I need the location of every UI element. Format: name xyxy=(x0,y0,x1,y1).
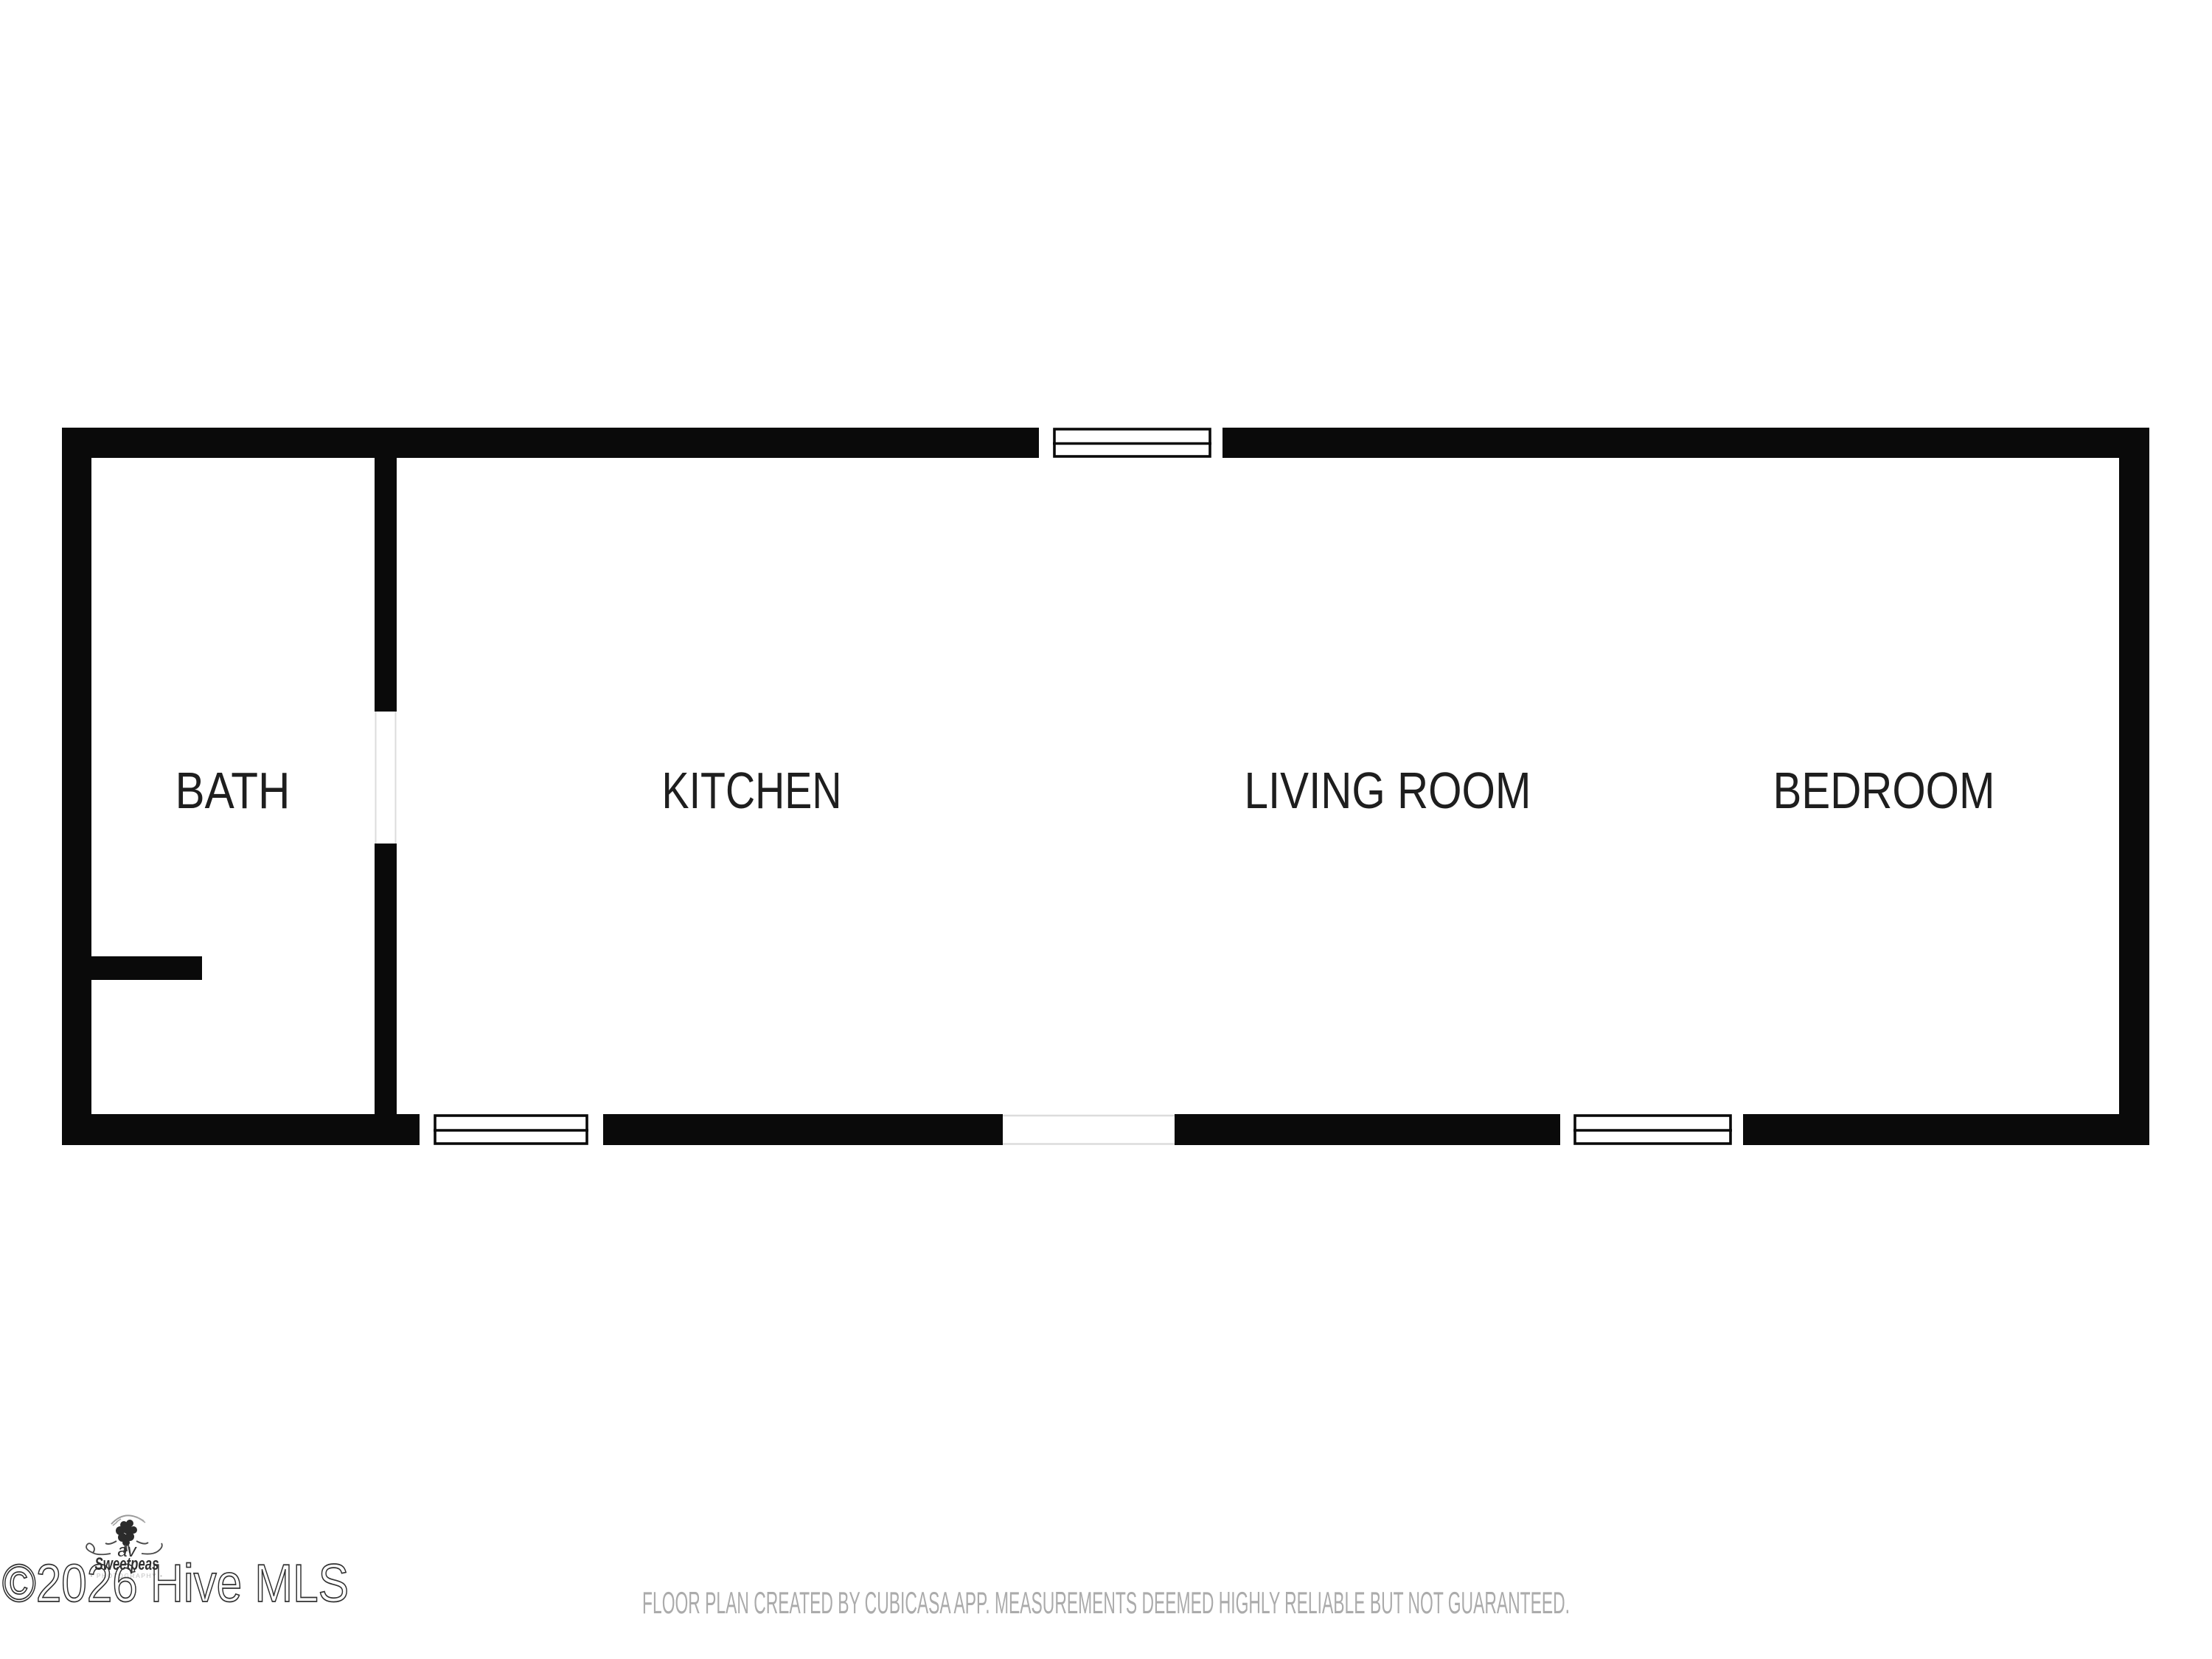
svg-text:BEDROOM: BEDROOM xyxy=(1773,762,1995,819)
svg-text:LIVING ROOM: LIVING ROOM xyxy=(1245,762,1531,819)
svg-text:BATH: BATH xyxy=(175,762,291,819)
svg-text:KITCHEN: KITCHEN xyxy=(662,762,842,819)
svg-text:FLOOR PLAN CREATED BY CUBICASA: FLOOR PLAN CREATED BY CUBICASA APP. MEAS… xyxy=(642,1585,1570,1620)
svg-text:©2026 Hive MLS: ©2026 Hive MLS xyxy=(2,1554,349,1613)
